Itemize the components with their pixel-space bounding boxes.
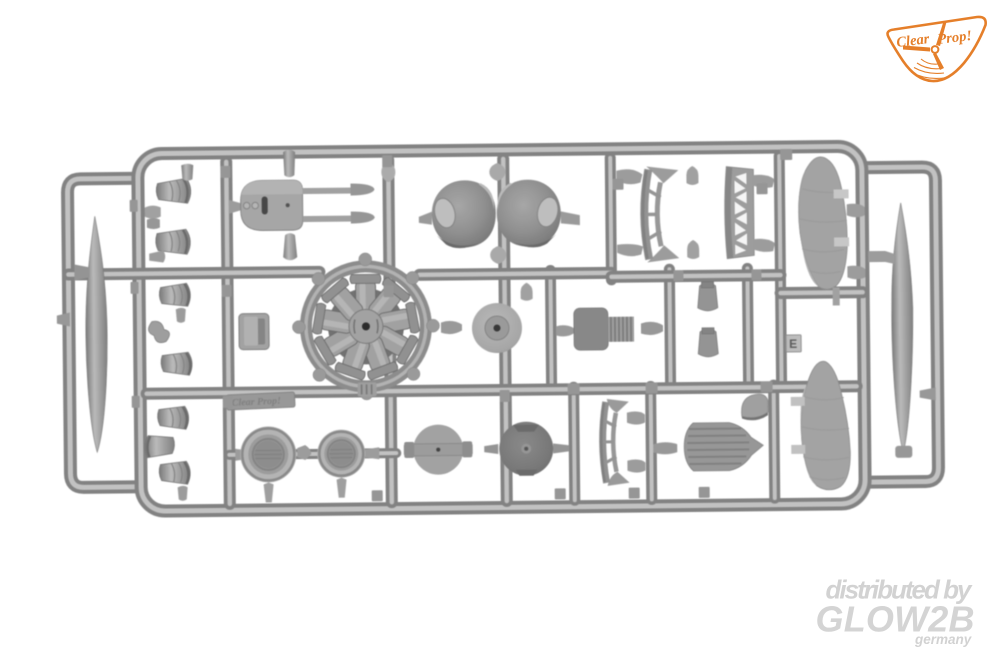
svg-text:germany: germany: [914, 632, 973, 647]
svg-text:Clear Prop!: Clear Prop!: [232, 396, 282, 409]
svg-text:E: E: [789, 337, 797, 351]
